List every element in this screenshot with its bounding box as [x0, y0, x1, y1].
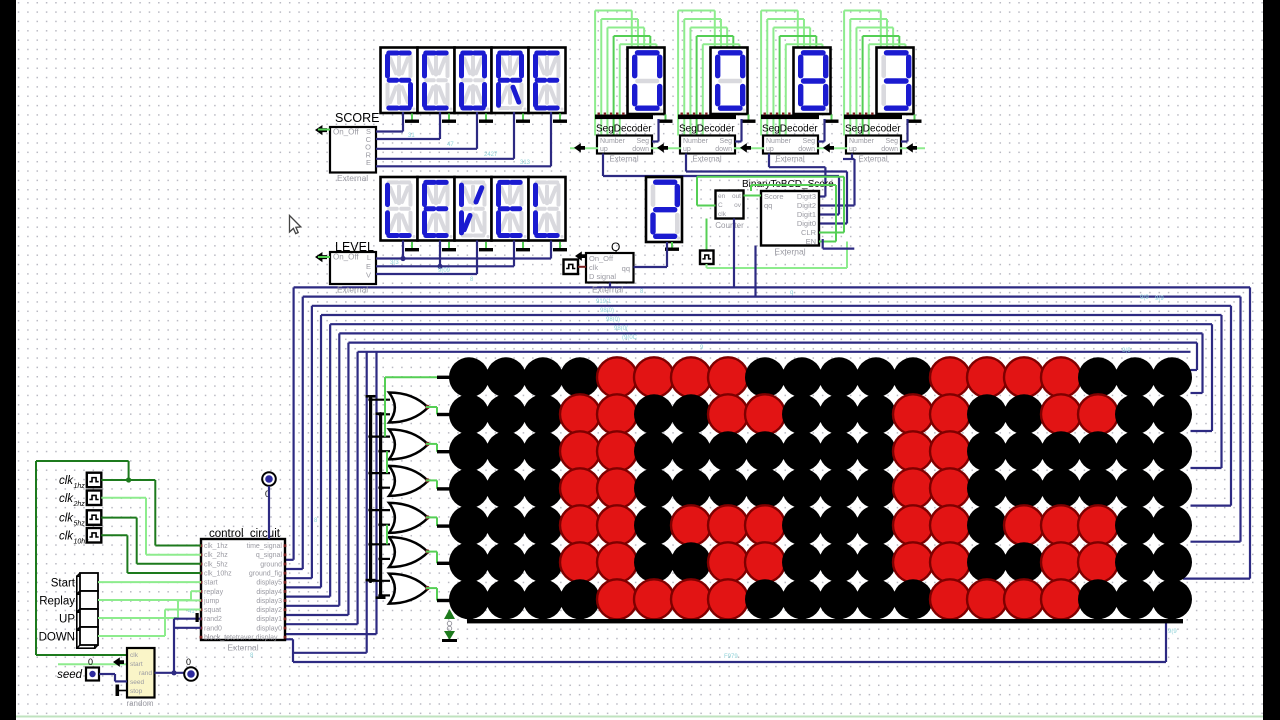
svg-text:up: up [849, 146, 857, 153]
svg-text:clk: clk [59, 513, 74, 525]
svg-text:2427: 2427 [484, 152, 498, 158]
svg-text:start: start [204, 580, 218, 587]
svg-text:External: External [337, 173, 368, 183]
svg-text:SCORE: SCORE [335, 111, 379, 125]
svg-text:clk_2hz: clk_2hz [204, 552, 228, 559]
svg-text:Q: Q [611, 240, 620, 254]
svg-text:block_te: block_te [204, 635, 230, 642]
svg-text:clk: clk [589, 263, 598, 272]
svg-text:q_signal: q_signal [256, 552, 283, 559]
svg-text:9(9: 9(9 [1155, 296, 1164, 302]
svg-text:1hz: 1hz [74, 483, 86, 490]
svg-text:squat: squat [204, 607, 221, 614]
svg-text:Score: Score [764, 192, 784, 201]
svg-text:5hz: 5hz [74, 521, 86, 528]
svg-text:rand: rand [139, 670, 152, 677]
svg-text:down: down [632, 146, 649, 153]
svg-text:qq: qq [622, 264, 630, 273]
svg-text:display2: display2 [256, 607, 282, 614]
svg-text:F979: F979 [724, 654, 738, 660]
svg-text:External: External [609, 155, 639, 164]
svg-text:9(9: 9(9 [1140, 295, 1149, 301]
svg-text:Number: Number [766, 138, 792, 145]
svg-text:External: External [592, 285, 623, 295]
svg-text:External: External [858, 155, 888, 164]
svg-text:display0: display0 [256, 625, 282, 632]
svg-text:out: out [732, 193, 741, 200]
svg-text:clk_5hz: clk_5hz [204, 561, 228, 568]
svg-text:98(0(: 98(0( [614, 326, 628, 332]
svg-text:CLR: CLR [801, 228, 817, 237]
svg-text:Seg: Seg [637, 138, 650, 145]
svg-text:313: 313 [520, 160, 531, 166]
svg-text:jump: jump [203, 598, 219, 605]
svg-text:UP: UP [59, 614, 75, 626]
svg-text:External: External [775, 155, 805, 164]
svg-text:98(0): 98(0) [606, 317, 620, 323]
svg-text:On_Off: On_Off [333, 253, 359, 262]
svg-text:On_Off: On_Off [333, 128, 359, 137]
svg-text:rand0: rand0 [204, 625, 222, 632]
svg-text:External: External [774, 247, 805, 257]
svg-text:919(1: 919(1 [596, 299, 612, 305]
svg-text:display5: display5 [256, 580, 282, 587]
svg-text:D signal: D signal [589, 272, 616, 281]
svg-text:seed: seed [130, 679, 144, 686]
svg-text:E: E [366, 158, 371, 167]
svg-text:9(9: 9(9 [1122, 348, 1131, 354]
svg-text:9(09: 9(09 [438, 268, 451, 274]
svg-text:Digit1: Digit1 [797, 210, 816, 219]
svg-text:ov: ov [734, 202, 742, 209]
svg-text:ground_fig: ground_fig [249, 570, 282, 577]
svg-text:SegDecoder: SegDecoder [596, 124, 652, 135]
svg-text:2hz: 2hz [73, 501, 86, 508]
svg-text:Number: Number [683, 138, 709, 145]
svg-text:en: en [718, 193, 726, 200]
svg-text:clk: clk [59, 493, 74, 505]
svg-text:9(9: 9(9 [1168, 629, 1177, 635]
svg-text:Seg: Seg [803, 138, 816, 145]
svg-text:(9(0C: (9(0C [622, 335, 638, 341]
svg-text:Digit3: Digit3 [797, 192, 816, 201]
svg-text:0: 0 [88, 657, 93, 667]
svg-text:On_Off: On_Off [589, 254, 614, 263]
svg-text:display1: display1 [256, 616, 282, 623]
svg-text:Digit0: Digit0 [797, 219, 816, 228]
svg-text:EN: EN [806, 237, 816, 246]
svg-text:98(0): 98(0) [600, 308, 614, 314]
svg-text:ground: ground [260, 561, 282, 568]
svg-text:clk: clk [59, 530, 74, 542]
svg-text:tetraver display: tetraver display [230, 635, 278, 642]
svg-text:DOWN: DOWN [39, 632, 75, 644]
svg-text:Seg: Seg [886, 138, 899, 145]
svg-text:Replay: Replay [39, 596, 75, 608]
svg-text:External: External [337, 285, 368, 295]
svg-text:clk: clk [130, 652, 139, 659]
svg-text:External: External [227, 643, 258, 653]
svg-text:SegDecoder: SegDecoder [762, 124, 818, 135]
svg-text:L: L [367, 253, 371, 262]
svg-text:clk_10hz: clk_10hz [204, 570, 232, 577]
svg-text:display4: display4 [256, 589, 282, 596]
svg-text:Number: Number [600, 138, 626, 145]
svg-text:up: up [683, 146, 691, 153]
svg-text:31: 31 [408, 133, 415, 139]
svg-text:SegDecoder: SegDecoder [845, 124, 901, 135]
svg-text:display3: display3 [256, 598, 282, 605]
svg-text:replay: replay [204, 589, 224, 596]
svg-text:47: 47 [447, 142, 454, 148]
svg-text:E: E [366, 262, 371, 271]
svg-text:10hz: 10hz [74, 538, 90, 545]
svg-text:stop: stop [130, 688, 143, 695]
svg-text:random: random [126, 699, 153, 708]
svg-text:V: V [366, 271, 371, 280]
svg-text:Seg: Seg [720, 138, 733, 145]
svg-text:Digit2: Digit2 [797, 201, 816, 210]
svg-text:q: q [790, 290, 793, 296]
svg-text:clk: clk [718, 211, 727, 218]
svg-text:Start: Start [51, 578, 76, 590]
svg-text:qq: qq [764, 201, 772, 210]
svg-text:seed: seed [57, 669, 83, 681]
svg-text:rand2: rand2 [204, 616, 222, 623]
svg-text:up: up [766, 146, 774, 153]
svg-text:Counter: Counter [715, 221, 744, 230]
svg-text:down: down [715, 146, 732, 153]
svg-text:up: up [600, 146, 608, 153]
svg-text:C: C [718, 202, 723, 209]
svg-text:start: start [130, 661, 143, 668]
svg-text:SegDecoder: SegDecoder [679, 124, 735, 135]
svg-text:Number: Number [849, 138, 875, 145]
svg-text:time_signal: time_signal [247, 543, 283, 550]
svg-text:down: down [798, 146, 815, 153]
svg-text:3(3: 3(3 [390, 260, 399, 266]
svg-text:down: down [881, 146, 898, 153]
svg-text:External: External [692, 155, 722, 164]
svg-text:clk_1hz: clk_1hz [204, 543, 228, 550]
svg-text:41: 41 [188, 609, 195, 615]
svg-text:clk: clk [59, 475, 74, 487]
svg-text:0: 0 [186, 657, 191, 667]
